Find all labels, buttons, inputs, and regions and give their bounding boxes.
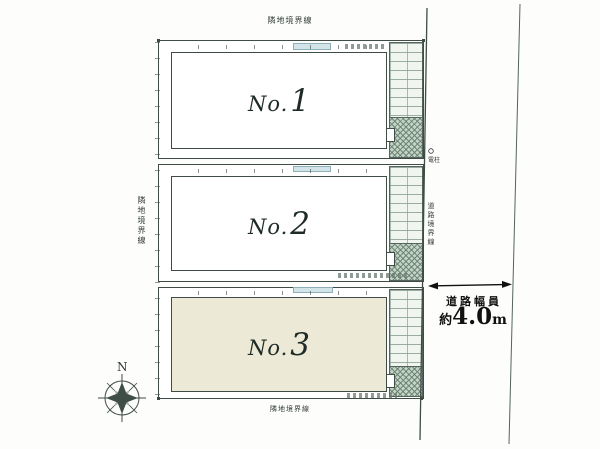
compass-north-label: N	[117, 360, 128, 374]
road-far-edge-line	[509, 4, 520, 444]
lot-1-label-number: 1	[290, 83, 310, 119]
road-width-arrow-left-head	[428, 282, 438, 289]
lot-3-label-number: 3	[290, 327, 310, 363]
survey-point	[157, 39, 160, 42]
lot-3-label: No. 3	[248, 327, 310, 363]
lot-2-survey-ticks	[171, 169, 387, 173]
road-width-value: 約 4.0 m	[428, 305, 518, 328]
lot-1-survey-ticks	[171, 45, 387, 49]
lot-3-label-prefix: No.	[248, 336, 288, 360]
survey-point	[157, 397, 160, 400]
lot-2-label-prefix: No.	[248, 215, 288, 239]
lot-3-survey-ticks	[171, 291, 387, 295]
lot-2-label: No. 2	[248, 206, 310, 242]
lot-2-dimension-microtext	[338, 273, 410, 278]
lot-1-label-prefix: No.	[248, 92, 288, 116]
road-width-number: 4.0	[452, 305, 492, 328]
lot-3-dimension-microtext	[347, 393, 397, 398]
road-width-arrow-right-head	[502, 281, 512, 288]
lot-2-label-number: 2	[290, 206, 310, 242]
left-boundary-ticks	[155, 42, 160, 398]
road-boundary-label: 道路境界線	[426, 202, 436, 262]
boundary-label-bottom: 隣地境界線	[248, 404, 332, 414]
compass-rose-icon	[98, 374, 146, 422]
survey-point	[420, 397, 423, 400]
lot-1-label: No. 1	[248, 83, 310, 119]
lot-3-pad: No. 3	[171, 297, 387, 392]
road-width-arrow-shaft	[436, 285, 504, 286]
utility-pole-icon	[429, 149, 434, 154]
plot-layout-diagram: No. 1 No. 2 No. 3	[0, 0, 600, 449]
road-width-unit: m	[492, 312, 507, 328]
boundary-label-left: 隣地境界線	[136, 196, 147, 256]
road-width-approx: 約	[439, 309, 452, 328]
survey-point	[422, 39, 425, 42]
boundary-label-top: 隣地境界線	[250, 15, 330, 26]
lot-2-pad: No. 2	[171, 176, 387, 271]
utility-pole-label: 電柱	[428, 155, 440, 164]
lot-1-pad: No. 1	[171, 52, 387, 149]
